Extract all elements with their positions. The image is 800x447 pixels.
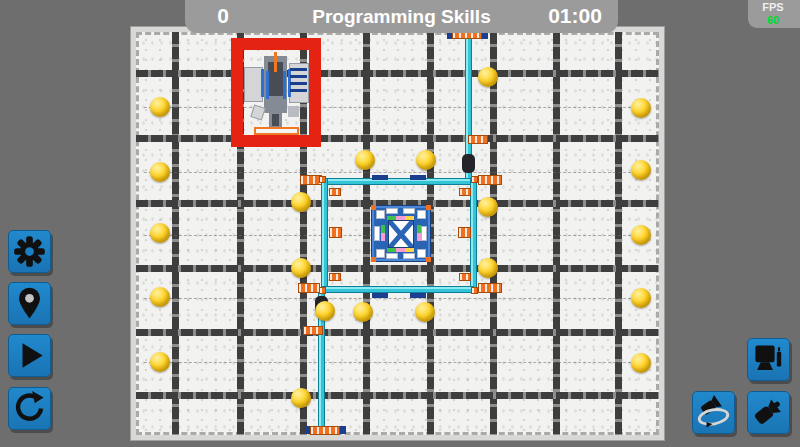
yellow-ball bbox=[150, 223, 170, 243]
pipe-bracket bbox=[410, 175, 426, 180]
robot-blue-rail bbox=[283, 71, 286, 99]
tile-center-line bbox=[144, 362, 651, 363]
platform-pad bbox=[376, 249, 385, 258]
yellow-ball bbox=[478, 197, 498, 217]
platform-corner-dot bbox=[426, 257, 431, 262]
platform-pad bbox=[403, 208, 415, 214]
platform-color-strip bbox=[417, 225, 421, 241]
pipe-connector bbox=[468, 135, 488, 144]
robot-intake-bar bbox=[254, 127, 299, 135]
yellow-ball bbox=[631, 160, 651, 180]
yellow-ball bbox=[150, 97, 170, 117]
pipe-bracket bbox=[372, 175, 388, 180]
reset-button[interactable] bbox=[8, 387, 51, 430]
set-position-button[interactable] bbox=[8, 282, 51, 325]
yellow-ball bbox=[478, 67, 498, 87]
gear-icon bbox=[12, 234, 47, 269]
robot-top-view[interactable] bbox=[243, 54, 311, 138]
grid-line-vertical bbox=[172, 32, 179, 435]
yellow-ball bbox=[631, 98, 651, 118]
pipe-sleeve bbox=[462, 154, 475, 173]
platform-pad bbox=[376, 210, 385, 219]
pipe-connector bbox=[310, 426, 340, 435]
platform-pad bbox=[421, 226, 427, 241]
fps-label: FPS bbox=[748, 1, 798, 13]
play-icon bbox=[12, 338, 47, 373]
grid-line-horizontal bbox=[136, 70, 659, 77]
pipe-connector bbox=[329, 227, 342, 238]
cyan-pipe bbox=[322, 178, 474, 185]
pipe-connector bbox=[478, 283, 502, 293]
robot-arm-core bbox=[272, 114, 279, 126]
yellow-ball bbox=[631, 353, 651, 373]
match-status-bar: 0 Programming Skills 01:00 bbox=[185, 0, 618, 33]
yellow-ball bbox=[355, 150, 375, 170]
location-pin-icon bbox=[12, 286, 47, 321]
pipe-bracket bbox=[410, 293, 426, 298]
yellow-ball bbox=[631, 225, 651, 245]
pipe-connector bbox=[319, 287, 326, 294]
yellow-ball bbox=[315, 301, 335, 321]
grid-line-horizontal bbox=[136, 329, 659, 336]
yellow-ball bbox=[150, 352, 170, 372]
center-platform bbox=[371, 205, 431, 262]
pipe-connector bbox=[298, 283, 320, 293]
robot-foot bbox=[288, 106, 299, 117]
robot-orange-stripe bbox=[274, 52, 277, 72]
platform-color-strip bbox=[381, 225, 385, 241]
yellow-ball bbox=[291, 388, 311, 408]
platform-pad bbox=[386, 208, 398, 214]
platform-pad bbox=[417, 249, 426, 258]
robot-ladder-rung bbox=[290, 89, 307, 92]
pipe-connector bbox=[319, 176, 326, 183]
robot-blue-rail bbox=[261, 69, 264, 97]
platform-pad bbox=[417, 210, 426, 219]
yellow-ball bbox=[353, 302, 373, 322]
yellow-ball bbox=[150, 162, 170, 182]
cyan-pipe bbox=[321, 178, 328, 292]
reset-icon bbox=[12, 391, 47, 426]
camera-icon bbox=[751, 395, 786, 430]
tile-center-line bbox=[144, 107, 651, 108]
grid-line-vertical bbox=[363, 32, 370, 435]
settings-button[interactable] bbox=[8, 230, 51, 273]
pipe-connector bbox=[459, 273, 471, 281]
platform-pad bbox=[403, 253, 415, 259]
grid-line-vertical bbox=[490, 32, 497, 435]
grid-line-horizontal bbox=[136, 392, 659, 399]
fps-panel: FPS 60 bbox=[748, 0, 800, 28]
robot-blue-rail bbox=[266, 71, 269, 99]
yellow-ball bbox=[415, 302, 435, 322]
yellow-ball bbox=[416, 150, 436, 170]
grid-line-vertical bbox=[553, 32, 560, 435]
orbit-camera-icon bbox=[696, 395, 731, 430]
pipe-connector bbox=[471, 176, 478, 183]
play-button[interactable] bbox=[8, 334, 51, 377]
yellow-ball bbox=[631, 288, 651, 308]
camera-view-button[interactable] bbox=[747, 391, 790, 434]
robot-foot bbox=[250, 104, 265, 120]
orbit-camera-button[interactable] bbox=[692, 391, 735, 434]
screen-view-button[interactable] bbox=[747, 338, 790, 381]
pipe-connector bbox=[303, 326, 323, 335]
simulator-screen: 0 Programming Skills 01:00 FPS 60 bbox=[0, 0, 800, 447]
tile-center-line bbox=[144, 172, 651, 173]
pipe-connector bbox=[329, 273, 341, 281]
robot-ladder-rung bbox=[290, 68, 307, 71]
yellow-ball bbox=[291, 192, 311, 212]
pipe-connector bbox=[471, 287, 478, 294]
monitor-pen-icon bbox=[751, 342, 786, 377]
tile-center-line bbox=[144, 298, 651, 299]
cyan-pipe bbox=[322, 286, 474, 293]
cyan-pipe bbox=[470, 178, 477, 292]
robot-ladder-rung bbox=[290, 82, 307, 85]
grid-line-horizontal bbox=[136, 265, 659, 272]
platform-pad bbox=[374, 226, 380, 241]
yellow-ball bbox=[150, 287, 170, 307]
platform-color-strip bbox=[387, 248, 414, 252]
pipe-connector bbox=[459, 188, 471, 196]
pipe-connector bbox=[329, 188, 341, 196]
platform-corner-dot bbox=[371, 205, 376, 210]
yellow-ball bbox=[478, 258, 498, 278]
match-timer: 01:00 bbox=[536, 4, 614, 28]
pipe-connector bbox=[478, 175, 502, 185]
yellow-ball bbox=[291, 258, 311, 278]
grid-line-horizontal bbox=[136, 135, 659, 142]
fps-value: 60 bbox=[748, 14, 798, 26]
platform-pad bbox=[386, 253, 398, 259]
robot-ladder-rung bbox=[290, 75, 307, 78]
pipe-bracket bbox=[372, 293, 388, 298]
platform-corner-dot bbox=[426, 205, 431, 210]
platform-corner-dot bbox=[371, 257, 376, 262]
pipe-connector bbox=[458, 227, 471, 238]
grid-line-vertical bbox=[615, 32, 622, 435]
platform-x-brace bbox=[388, 220, 414, 248]
